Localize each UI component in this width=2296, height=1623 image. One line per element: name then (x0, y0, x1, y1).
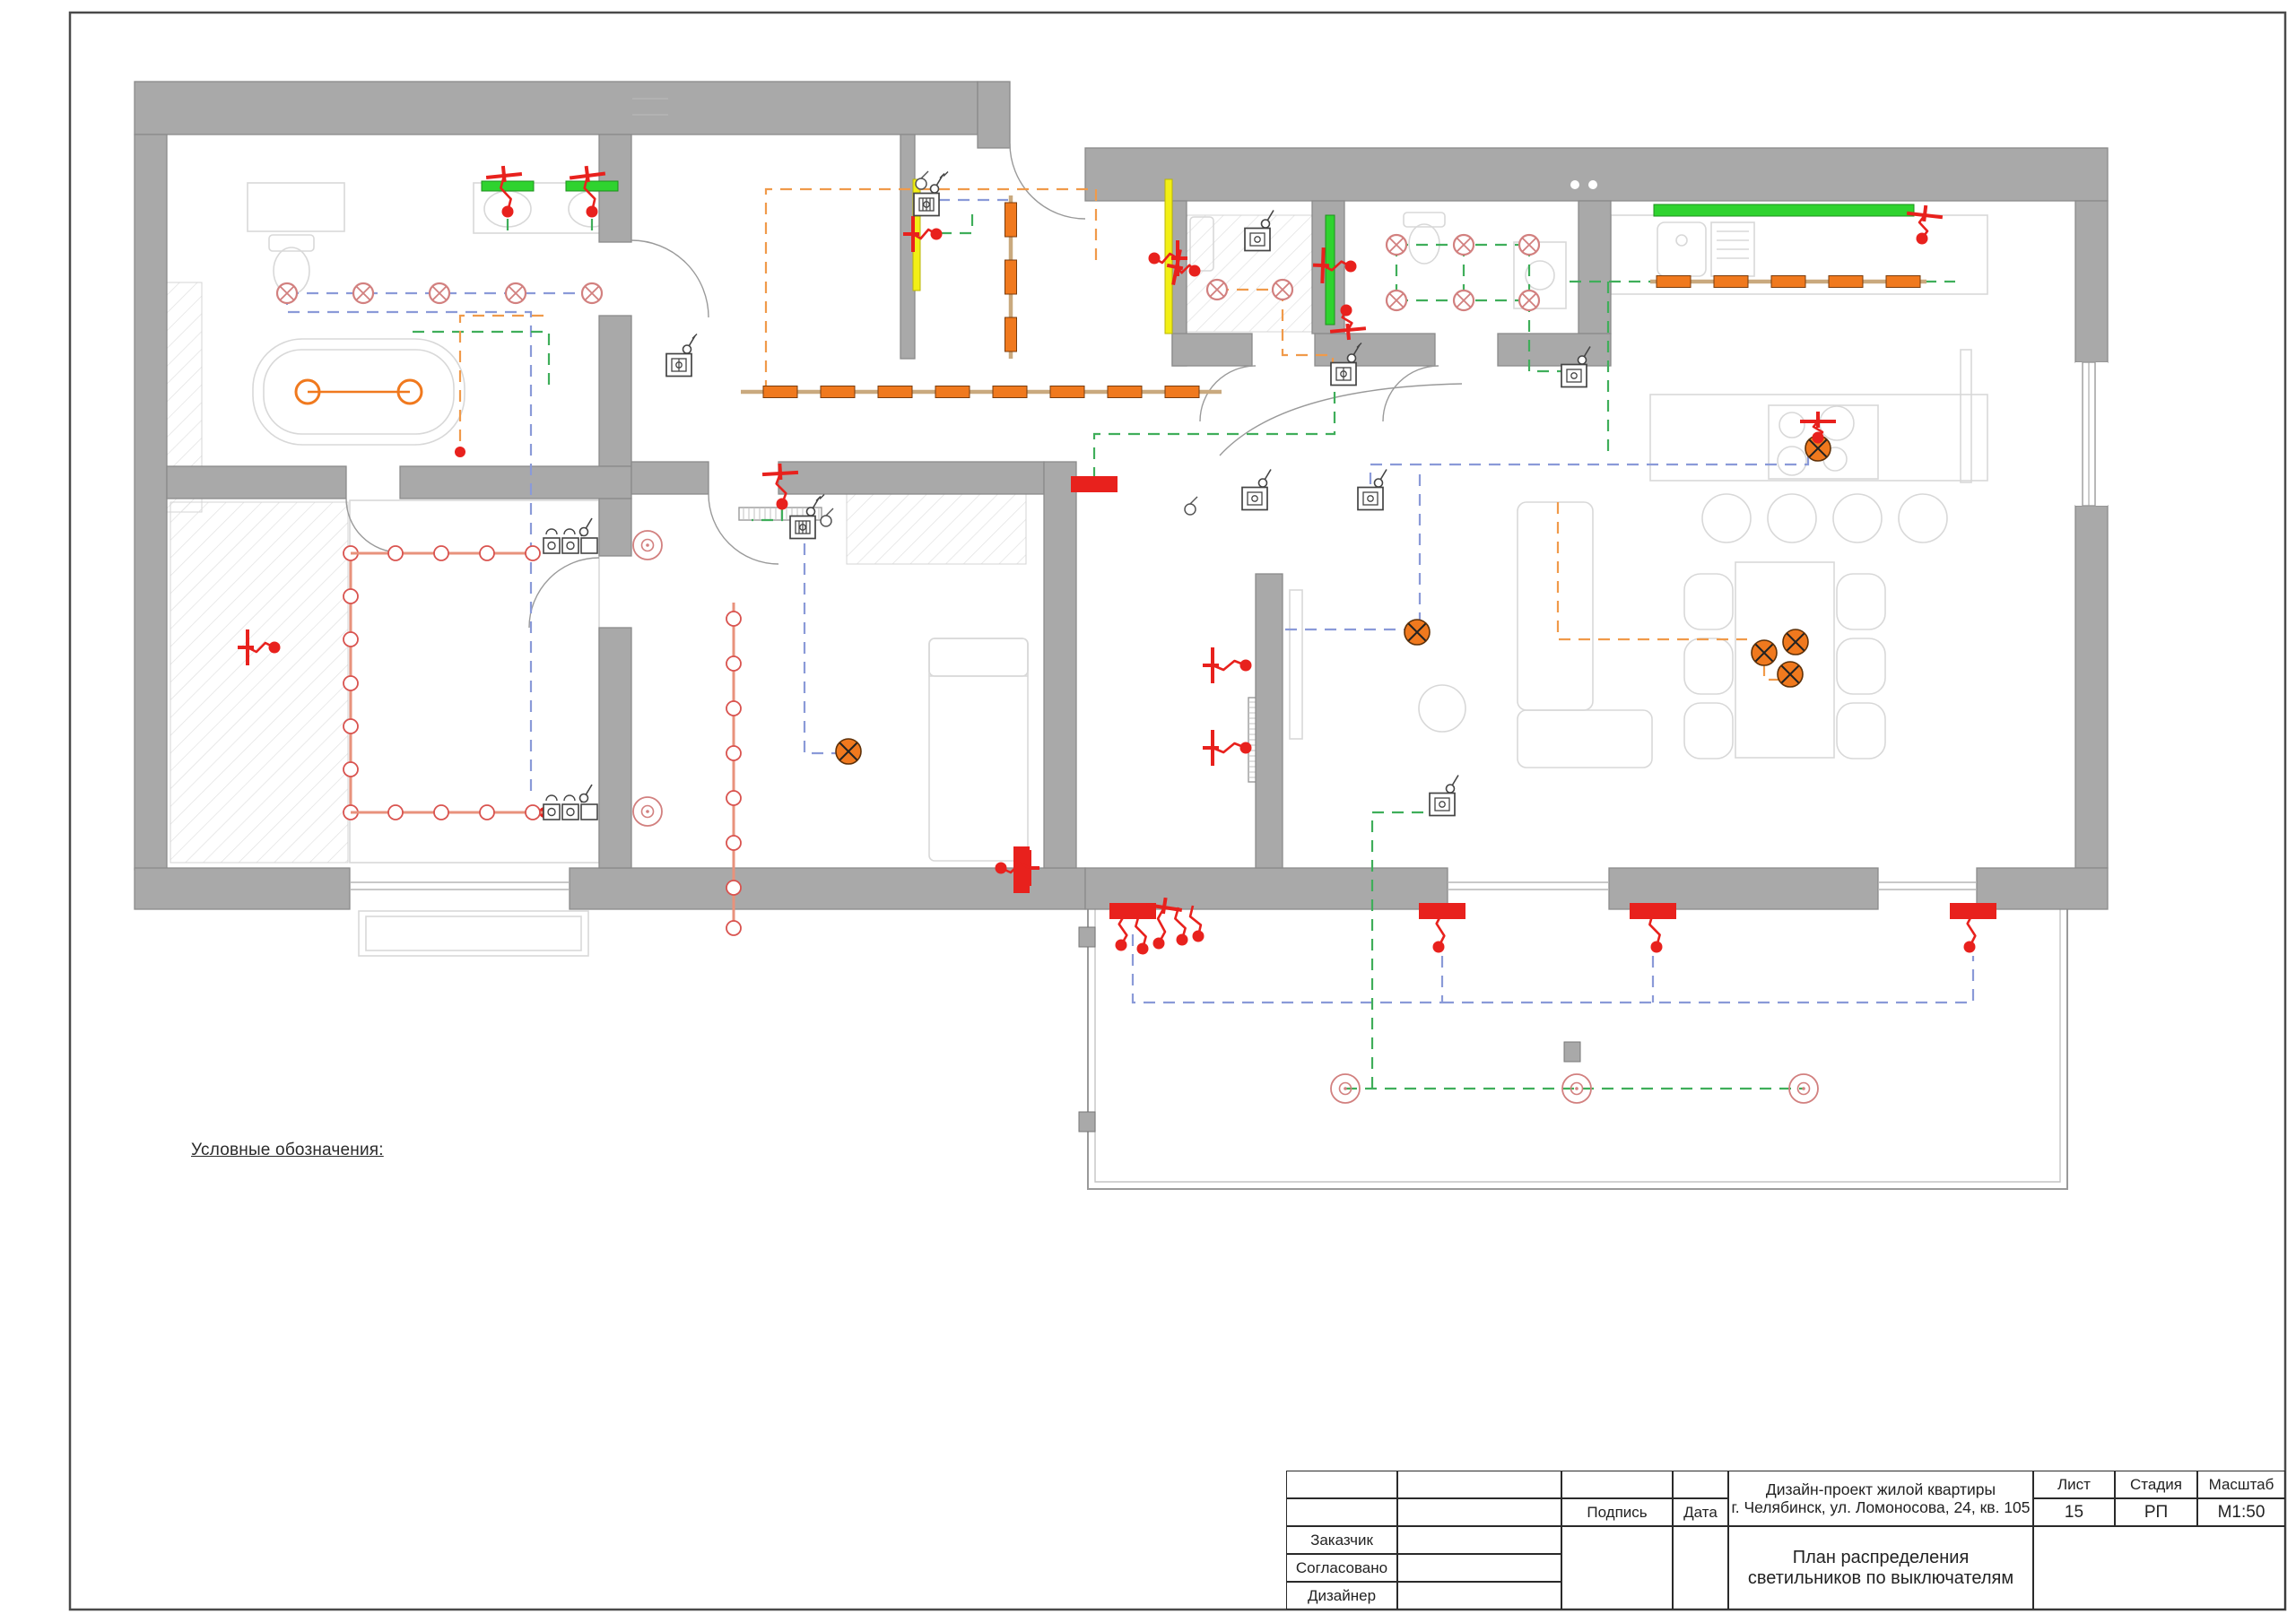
wall (599, 316, 631, 466)
furniture-outline (1837, 703, 1885, 759)
button-symbol (1203, 647, 1252, 683)
track-light-segment (1005, 203, 1017, 237)
tb-empty (1397, 1554, 1561, 1582)
wall (1044, 462, 1076, 868)
spot-light-symbol (506, 283, 526, 303)
wall-dot (1570, 180, 1579, 189)
wire-green (413, 332, 549, 387)
wall (167, 466, 346, 499)
strip-light-lamp (344, 719, 358, 733)
wire-green (1372, 812, 1430, 1089)
wire-orange (766, 189, 1096, 392)
spot-light-symbol (1273, 280, 1292, 299)
furniture-outline (1833, 494, 1882, 542)
furniture-outline (1961, 350, 1971, 482)
wire-green (940, 210, 972, 233)
strip-light-lamp (726, 746, 741, 760)
strip-light-lamp (388, 805, 403, 820)
furniture-outline (269, 235, 314, 251)
wall (135, 82, 978, 135)
furniture-outline (1684, 574, 1733, 629)
furniture-outline (1419, 685, 1465, 732)
strip-light-lamp (526, 546, 540, 560)
strip-light-lamp (726, 836, 741, 850)
wire-green (1094, 387, 1335, 479)
tb-empty (1673, 1526, 1728, 1610)
wall (631, 462, 709, 494)
switch-symbol (1358, 470, 1387, 510)
tb-stage-value: РП (2115, 1498, 2197, 1526)
terrace (1079, 909, 2067, 1189)
tb-empty (2033, 1526, 2285, 1610)
track-light-segment (821, 386, 855, 398)
track-light-segment (993, 386, 1027, 398)
track-light-segment (878, 386, 912, 398)
track-light-segment (1886, 276, 1920, 288)
spot-light-symbol (1454, 291, 1474, 310)
chandelier-symbol (1778, 662, 1803, 687)
terrace-post (1079, 927, 1095, 947)
furniture-outline (1837, 638, 1885, 694)
legend-title: Условные обозначения: (191, 1141, 384, 1160)
switch-symbol (1242, 470, 1271, 510)
switch-symbol (544, 518, 597, 553)
track-light-segment (935, 386, 970, 398)
spot-light-symbol (1207, 280, 1227, 299)
strip-light-lamp (726, 881, 741, 895)
tb-empty (1286, 1498, 1397, 1526)
wire-orange (1558, 502, 1747, 639)
tb-empty (1561, 1526, 1673, 1610)
tb-empty (1286, 1471, 1397, 1498)
hatched-area (847, 494, 1026, 564)
terrace-post (1564, 1042, 1580, 1062)
pendants-layer (633, 531, 1818, 1103)
door-swing-arc (346, 499, 400, 552)
spot-light-symbol (1454, 235, 1474, 255)
furniture-outline (1518, 710, 1652, 768)
track-light-segment (1714, 276, 1748, 288)
door-swing-arc (529, 558, 599, 628)
tb-row-customer: Заказчик (1286, 1526, 1397, 1554)
tb-empty (1397, 1498, 1561, 1526)
track-light-segment (1108, 386, 1142, 398)
wall (135, 135, 167, 870)
tb-sheet-label: Лист (2033, 1471, 2115, 1498)
socket-symbol (916, 171, 928, 189)
wire-blue (1370, 454, 1808, 504)
strip-light-lamp (434, 805, 448, 820)
door-swing-arc (1010, 143, 1085, 219)
wall (599, 628, 631, 868)
wall (1172, 334, 1252, 366)
pendant-light-symbol (633, 797, 662, 826)
door-swing-arc (1220, 384, 1462, 456)
chandelier-symbol (1752, 640, 1777, 665)
bra-symbol (1071, 476, 1118, 492)
tb-empty (1397, 1471, 1561, 1498)
floor-plan (0, 0, 2296, 1623)
door-swing-arc (709, 494, 778, 564)
strip-light-lamp (434, 546, 448, 560)
wall-dot (1588, 180, 1597, 189)
tb-date-header: Дата (1673, 1498, 1728, 1526)
led-strip-green (1654, 204, 1914, 216)
track-light-segment (1005, 260, 1017, 294)
wall (1085, 148, 2108, 201)
drawing-sheet: Условные обозначения: Заказчик Согласова… (0, 0, 2296, 1623)
led-strip-green (482, 181, 534, 191)
tb-empty (1561, 1471, 1673, 1498)
strip-light-lamp (526, 805, 540, 820)
strip-light-lamp (344, 676, 358, 690)
tb-scale-value: М1:50 (2197, 1498, 2285, 1526)
tb-empty (1673, 1471, 1728, 1498)
wall (1578, 201, 1611, 334)
title-block: Заказчик Согласовано Дизайнер Подпись Да… (1286, 1471, 2285, 1610)
wire-endpoint-dot (455, 447, 465, 457)
bra-symbol (1419, 903, 1465, 919)
furniture-outline (1518, 502, 1593, 710)
furniture-outline (1684, 703, 1733, 759)
track-light-segment (1005, 317, 1017, 352)
tb-project-line2: г. Челябинск, ул. Ломоносова, 24, кв. 10… (1731, 1498, 2030, 1516)
spot-light-symbol (353, 283, 373, 303)
socket-symbol (1185, 497, 1197, 515)
strip-light-lamp (344, 632, 358, 647)
spot-light-symbol (582, 283, 602, 303)
tb-project: Дизайн-проект жилой квартиры г. Челябинс… (1728, 1471, 2033, 1526)
tb-row-approved: Согласовано (1286, 1554, 1397, 1582)
socket-symbol (821, 508, 833, 526)
furniture-outline (1899, 494, 1947, 542)
door-swing-arc (631, 240, 709, 317)
furniture-outline (366, 916, 581, 950)
switch-symbol (666, 334, 697, 377)
lamp-drop-symbol (1175, 907, 1187, 946)
wall (400, 466, 631, 499)
tb-signature-header: Подпись (1561, 1498, 1673, 1526)
wall (1256, 574, 1283, 868)
spot-light-symbol (1387, 291, 1406, 310)
bras-layer (1013, 476, 1996, 919)
furniture-outline (1778, 447, 1806, 475)
wall (2075, 201, 2108, 362)
hatched-area (170, 502, 348, 863)
track-light-segment (1829, 276, 1863, 288)
spot-light-symbol (1519, 291, 1539, 310)
tb-empty (1397, 1582, 1561, 1610)
chandelier-symbol (1783, 629, 1808, 655)
tb-project-line1: Дизайн-проект жилой квартиры (1766, 1480, 1996, 1498)
led-strip-green (566, 181, 618, 191)
track-light-segment (1165, 386, 1199, 398)
furniture-outline (1684, 638, 1733, 694)
furniture-outline (1768, 494, 1816, 542)
furniture-outline (929, 638, 1028, 861)
wall (570, 868, 1085, 909)
wall (978, 82, 1010, 148)
switch-symbol (1430, 776, 1458, 816)
pendant-light-symbol (633, 531, 662, 560)
switch-symbol (544, 785, 597, 820)
strip-light-lamp (388, 546, 403, 560)
furniture-outline (1676, 235, 1687, 246)
furniture-outline (1779, 412, 1805, 438)
spot-light-symbol (1519, 235, 1539, 255)
strip-light-lamp (726, 921, 741, 935)
chandelier-symbol (1405, 620, 1430, 645)
strip-light-lamp (726, 701, 741, 716)
bra-symbol (1950, 903, 1996, 919)
furniture-outline (929, 638, 1028, 676)
wall (599, 499, 631, 556)
spot-light-symbol (1387, 235, 1406, 255)
wall (1498, 334, 1611, 366)
chandelier-symbol (836, 739, 861, 764)
wires-layer (287, 189, 1973, 1089)
strip-light-lamp (726, 612, 741, 626)
wire-blue (1442, 956, 1973, 1002)
track-light-segment (763, 386, 797, 398)
tb-sheet-value: 15 (2033, 1498, 2115, 1526)
furniture-outline (1290, 590, 1302, 739)
furniture-outline (1657, 222, 1706, 276)
pendant-light-symbol (1789, 1074, 1818, 1103)
lamp-drop-symbol (1190, 906, 1204, 942)
strip-light-lamp (726, 656, 741, 671)
strip-light-lamp (344, 762, 358, 777)
track-light-segment (1771, 276, 1805, 288)
terrace-post (1079, 1112, 1095, 1132)
furniture-outline (1702, 494, 1751, 542)
spot-light-symbol (277, 283, 297, 303)
strip-light-lamp (480, 546, 494, 560)
tb-drawing-title: План распределения светильников по выклю… (1728, 1526, 2033, 1610)
lamp-drop-symbol (1116, 915, 1127, 951)
furniture-outline (359, 911, 588, 956)
button-symbol (1203, 730, 1252, 766)
track-light-segment (1657, 276, 1691, 288)
strip-light-lamp (480, 805, 494, 820)
tb-scale-label: Масштаб (2197, 1471, 2285, 1498)
spot-light-symbol (430, 283, 449, 303)
strip-light-lamp (344, 589, 358, 603)
tb-row-designer: Дизайнер (1286, 1582, 1397, 1610)
strip-light-lamp (726, 791, 741, 805)
tb-stage-label: Стадия (2115, 1471, 2197, 1498)
furniture-outline (248, 183, 344, 231)
tb-empty (1397, 1526, 1561, 1554)
bathtub-lights (296, 380, 422, 404)
wire-blue (804, 543, 839, 753)
door-swing-arc (1383, 366, 1439, 421)
wall (778, 462, 1044, 494)
wall (135, 868, 350, 909)
track-light-segment (1050, 386, 1084, 398)
wall (2075, 506, 2108, 868)
furniture-outline (1837, 574, 1885, 629)
furniture-outline (1735, 562, 1834, 758)
lamp-drop-symbol (1135, 915, 1148, 955)
